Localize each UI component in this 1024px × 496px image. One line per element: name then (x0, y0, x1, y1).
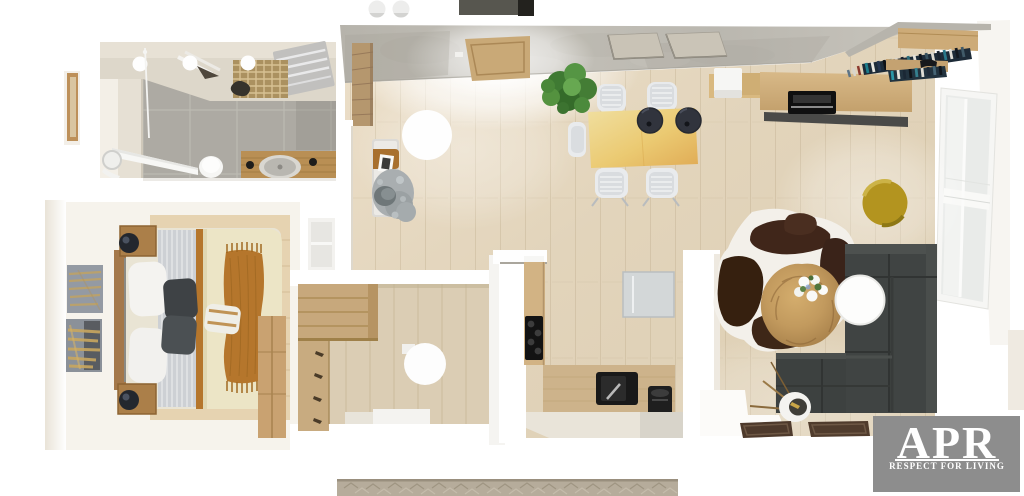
svg-text:RESPECT FOR LIVING: RESPECT FOR LIVING (889, 461, 1005, 471)
